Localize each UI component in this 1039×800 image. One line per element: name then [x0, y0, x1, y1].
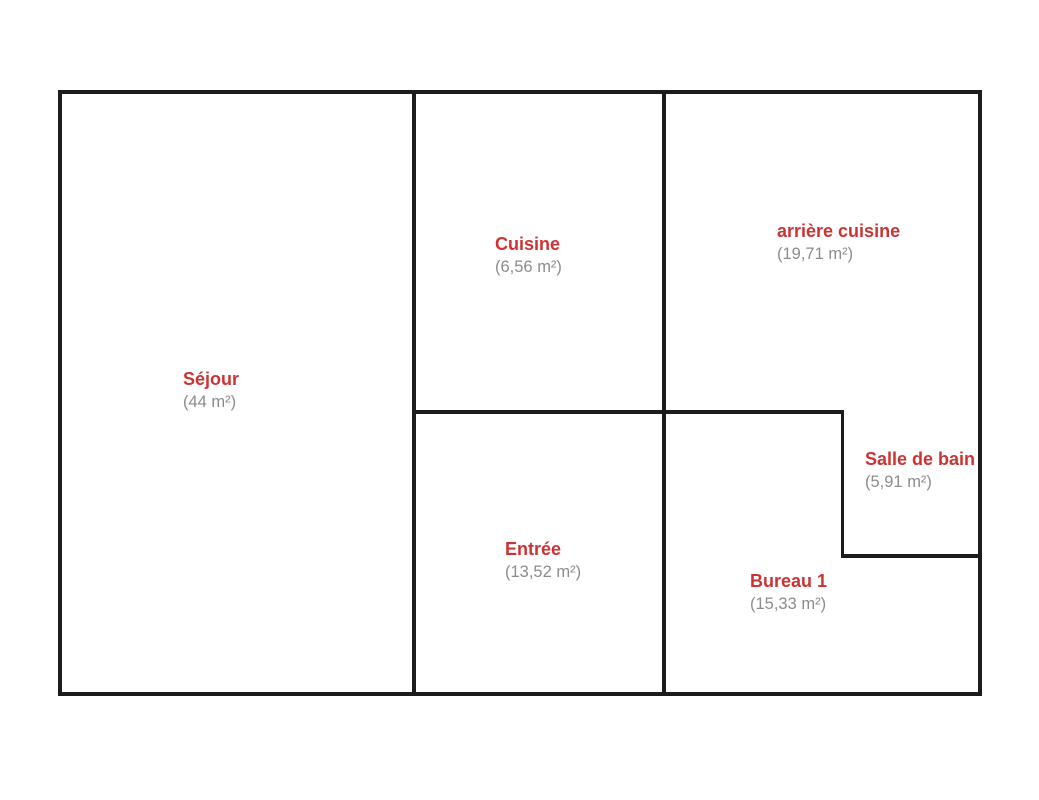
- room-name-sejour: Séjour: [183, 368, 239, 391]
- room-area-bureau-1: (15,33 m²): [750, 593, 827, 616]
- room-label-cuisine: Cuisine (6,56 m²): [495, 233, 562, 279]
- room-area-arriere-cuisine: (19,71 m²): [777, 243, 900, 266]
- room-label-bureau-1: Bureau 1 (15,33 m²): [750, 570, 827, 616]
- room-label-sejour: Séjour (44 m²): [183, 368, 239, 414]
- floor-plan-outline: Séjour (44 m²) Cuisine (6,56 m²) arrière…: [58, 90, 982, 696]
- room-area-cuisine: (6,56 m²): [495, 256, 562, 279]
- room-name-entree: Entrée: [505, 538, 581, 561]
- wall-middle-right-divider: [662, 94, 666, 692]
- room-label-arriere-cuisine: arrière cuisine (19,71 m²): [777, 220, 900, 266]
- room-name-salle-de-bain: Salle de bain: [865, 448, 975, 471]
- room-label-salle-de-bain: Salle de bain (5,91 m²): [865, 448, 975, 494]
- room-area-salle-de-bain: (5,91 m²): [865, 471, 975, 494]
- room-label-entree: Entrée (13,52 m²): [505, 538, 581, 584]
- room-name-bureau-1: Bureau 1: [750, 570, 827, 593]
- room-name-arriere-cuisine: arrière cuisine: [777, 220, 900, 243]
- room-name-cuisine: Cuisine: [495, 233, 562, 256]
- floor-plan-page: Séjour (44 m²) Cuisine (6,56 m²) arrière…: [0, 0, 1039, 800]
- wall-sejour-divider: [412, 94, 416, 692]
- room-area-entree: (13,52 m²): [505, 561, 581, 584]
- room-area-sejour: (44 m²): [183, 391, 239, 414]
